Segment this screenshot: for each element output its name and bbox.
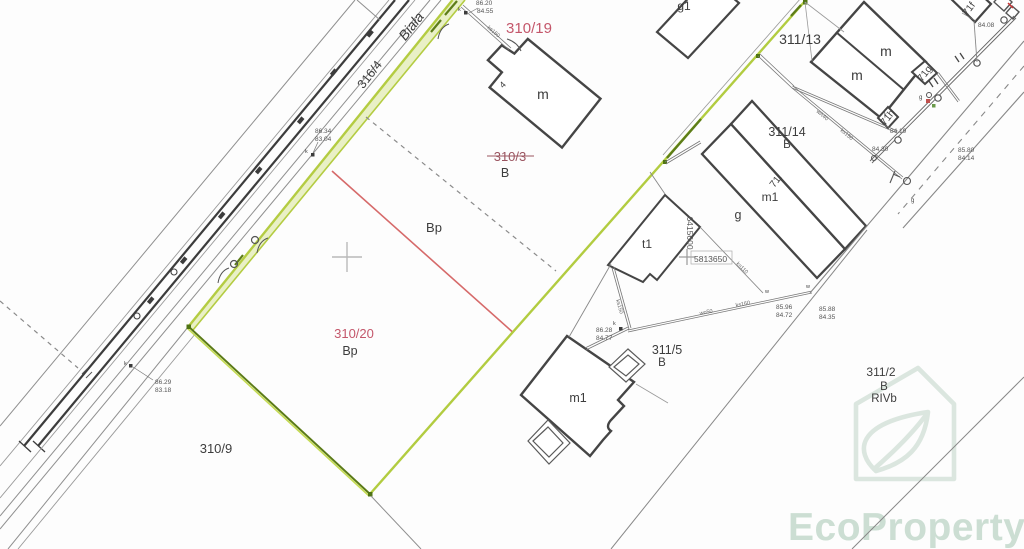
svg-text:86.34: 86.34 — [315, 128, 332, 135]
svg-text:RIVb: RIVb — [871, 393, 897, 405]
svg-text:B: B — [783, 139, 791, 151]
svg-text:B: B — [501, 166, 509, 180]
svg-text:84.77: 84.77 — [596, 335, 613, 342]
svg-text:EcoProperty: EcoProperty — [788, 506, 1024, 549]
svg-text:k: k — [884, 112, 887, 118]
svg-text:84.72: 84.72 — [776, 312, 793, 319]
svg-text:6415600: 6415600 — [685, 216, 695, 249]
svg-text:w: w — [764, 289, 769, 295]
svg-text:m: m — [880, 43, 892, 59]
svg-text:310/19: 310/19 — [506, 20, 552, 37]
svg-text:311/2: 311/2 — [866, 365, 895, 379]
svg-text:84.30: 84.30 — [872, 146, 889, 153]
svg-text:83.18: 83.18 — [155, 387, 172, 394]
svg-text:g: g — [919, 95, 922, 101]
svg-text:85.88: 85.88 — [819, 306, 836, 313]
svg-text:w: w — [805, 284, 810, 290]
svg-text:311/14: 311/14 — [768, 125, 805, 139]
svg-text:84.19: 84.19 — [890, 128, 907, 135]
svg-text:5813650: 5813650 — [694, 254, 727, 264]
svg-text:84.35: 84.35 — [819, 314, 836, 321]
svg-text:85.80: 85.80 — [958, 147, 975, 154]
svg-text:k: k — [305, 149, 308, 155]
svg-text:310/20: 310/20 — [334, 326, 374, 341]
svg-text:Bp: Bp — [426, 220, 442, 235]
svg-text:311/5: 311/5 — [652, 343, 682, 357]
svg-text:B: B — [658, 357, 666, 369]
svg-text:m: m — [851, 67, 863, 83]
svg-text:m1: m1 — [762, 190, 779, 204]
svg-text:t1: t1 — [642, 237, 652, 251]
svg-text:311/13: 311/13 — [779, 31, 821, 47]
svg-text:85.96: 85.96 — [776, 304, 793, 311]
svg-text:B: B — [880, 381, 888, 393]
svg-text:84.14: 84.14 — [958, 155, 975, 162]
svg-text:m1: m1 — [569, 391, 586, 405]
svg-text:84.55: 84.55 — [477, 8, 494, 15]
svg-text:86.28: 86.28 — [596, 327, 613, 334]
svg-text:k: k — [613, 321, 616, 327]
svg-text:310/9: 310/9 — [200, 441, 233, 456]
svg-text:83.04: 83.04 — [315, 136, 332, 143]
svg-text:g: g — [911, 198, 914, 204]
svg-text:Bp: Bp — [342, 344, 357, 358]
svg-text:86.29: 86.29 — [155, 379, 172, 386]
svg-text:g1: g1 — [677, 0, 691, 13]
svg-text:g: g — [735, 208, 742, 222]
svg-text:84.08: 84.08 — [978, 22, 995, 29]
svg-text:86.20: 86.20 — [476, 0, 493, 7]
svg-text:k: k — [124, 361, 127, 367]
svg-text:k: k — [458, 7, 461, 13]
svg-text:m: m — [537, 86, 549, 102]
